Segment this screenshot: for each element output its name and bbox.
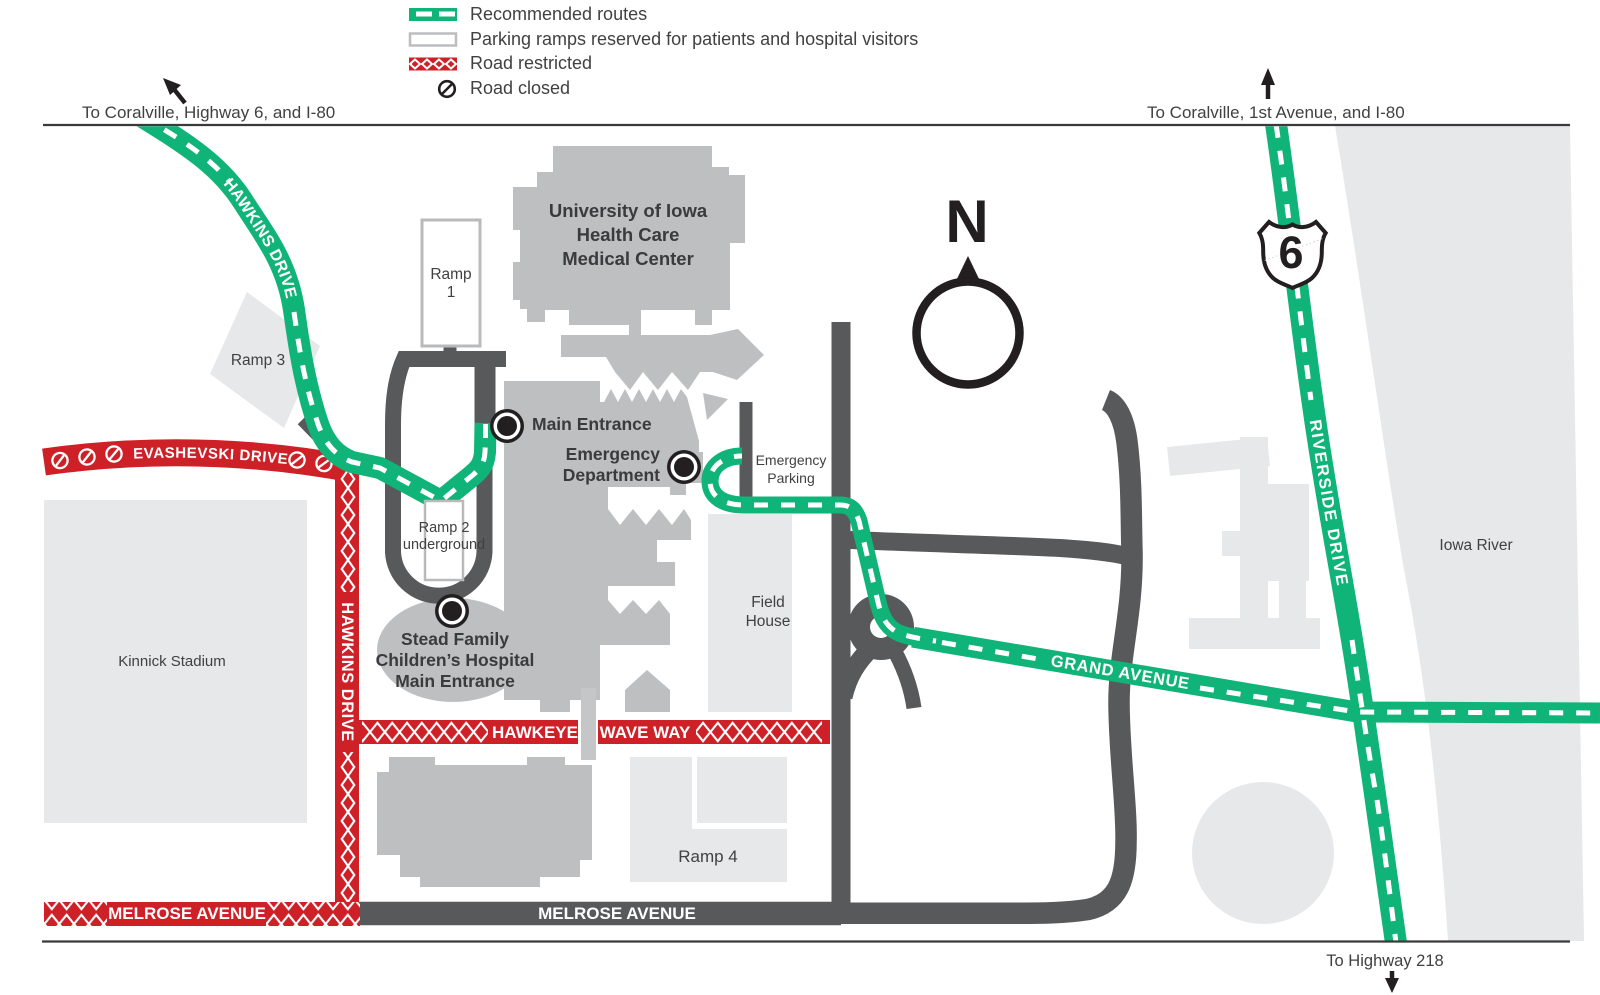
svg-text:underground: underground [403,537,485,553]
svg-text:Road restricted: Road restricted [470,53,592,73]
svg-text:House: House [746,613,791,630]
svg-text:MELROSE AVENUE: MELROSE AVENUE [538,904,696,923]
svg-text:Parking: Parking [767,470,814,486]
svg-text:Emergency: Emergency [756,452,827,468]
svg-text:Iowa River: Iowa River [1439,537,1512,554]
svg-text:To Coralville, 1st Avenue, and: To Coralville, 1st Avenue, and I-80 [1147,103,1405,122]
svg-text:Main Entrance: Main Entrance [395,671,515,691]
svg-text:Health Care: Health Care [577,224,680,245]
svg-text:Parking ramps reserved for pat: Parking ramps reserved for patients and … [470,29,918,49]
svg-text:HAWKINS DRIVE: HAWKINS DRIVE [338,602,356,741]
svg-text:To Coralville, Highway 6, and: To Coralville, Highway 6, and I-80 [82,103,335,122]
svg-text:Children’s Hospital: Children’s Hospital [376,650,535,670]
svg-text:Road closed: Road closed [470,78,570,98]
svg-text:Ramp 4: Ramp 4 [678,847,738,866]
svg-text:N: N [945,188,988,255]
svg-text:HAWKEYE: HAWKEYE [492,723,578,742]
svg-text:Recommended routes: Recommended routes [470,4,647,24]
svg-text:Department: Department [563,465,660,485]
svg-text:6: 6 [1278,227,1303,278]
svg-text:Main Entrance: Main Entrance [532,414,652,434]
svg-text:Stead Family: Stead Family [401,629,509,649]
svg-text:Medical Center: Medical Center [562,248,694,269]
svg-text:Field: Field [751,594,785,611]
svg-text:Ramp 3: Ramp 3 [231,352,285,369]
svg-text:1: 1 [447,284,456,301]
svg-text:Ramp 2: Ramp 2 [419,520,470,536]
svg-text:To Highway 218: To Highway 218 [1326,952,1443,970]
svg-text:WAVE WAY: WAVE WAY [600,723,691,742]
svg-text:Ramp: Ramp [430,266,471,283]
svg-text:University of Iowa: University of Iowa [549,200,708,221]
svg-text:Kinnick Stadium: Kinnick Stadium [118,653,226,670]
svg-text:MELROSE AVENUE: MELROSE AVENUE [108,904,266,923]
svg-text:Emergency: Emergency [566,444,661,464]
